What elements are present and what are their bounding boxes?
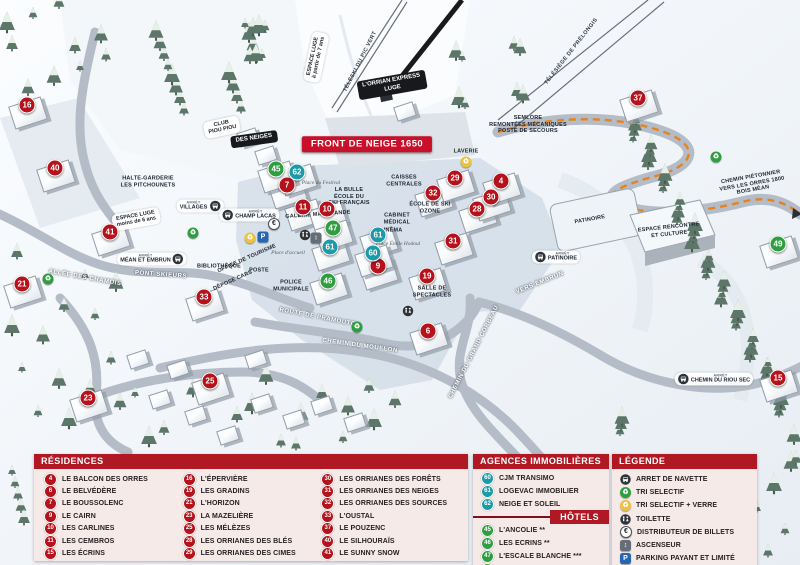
map-marker-28[interactable]: 28 bbox=[469, 201, 486, 218]
residence-item-29: 29LES ORRIANES DES CIMES bbox=[183, 547, 322, 559]
legend-item-label: L'OUSTAL bbox=[339, 513, 374, 520]
legend-number-badge: 6 bbox=[44, 485, 57, 498]
legend-number-badge: 62 bbox=[481, 498, 494, 511]
residence-item-33: 33L'OUSTAL bbox=[321, 510, 460, 522]
bus-icon bbox=[620, 474, 631, 485]
legend-item-label: LES MÉLÈZES bbox=[201, 525, 251, 532]
hotel-item-46: 46LES ECRINS ** bbox=[481, 537, 603, 550]
residence-item-7: 7LE BOUSSOLENC bbox=[44, 498, 183, 510]
legend-item-label: LES ORRIANES DES BLÉS bbox=[201, 538, 293, 545]
legende-item-toilet: TOILETTE bbox=[620, 513, 751, 526]
parking-icon: P bbox=[620, 553, 631, 564]
legende-item-label: TRI SELECTIF + VERRE bbox=[636, 502, 717, 509]
map-marker-21[interactable]: 21 bbox=[14, 276, 31, 293]
panel-residences: RÉSIDENCES 4LE BALCON DES ORRES6LE BELVÉ… bbox=[34, 454, 468, 561]
legende-item-waste: ♻TRI SELECTIF + VERRE bbox=[620, 499, 751, 512]
legend-number-badge: 46 bbox=[481, 537, 494, 550]
map-marker-33[interactable]: 33 bbox=[196, 289, 213, 306]
map-marker-10[interactable]: 10 bbox=[319, 201, 336, 218]
map-marker-30[interactable]: 30 bbox=[483, 189, 500, 206]
legend-item-label: LES ORRIANES DES NEIGES bbox=[339, 488, 439, 495]
residence-item-25: 25LES MÉLÈZES bbox=[183, 523, 322, 535]
residence-item-10: 10LES CARLINES bbox=[44, 523, 183, 535]
residence-item-41: 41LE SUNNY SNOW bbox=[321, 547, 460, 559]
map-marker-19[interactable]: 19 bbox=[419, 268, 436, 285]
map-marker-45[interactable]: 45 bbox=[268, 161, 285, 178]
map-marker-25[interactable]: 25 bbox=[202, 373, 219, 390]
map-marker-49[interactable]: 49 bbox=[770, 236, 787, 253]
residence-item-16: 16L'ÉPERVIÈRE bbox=[183, 473, 322, 485]
legende-item-label: ARRET DE NAVETTE bbox=[636, 476, 707, 483]
legend-number-badge: 40 bbox=[321, 535, 334, 548]
panel-legende: LÉGENDE ARRET DE NAVETTE♻TRI SELECTIF♻TR… bbox=[612, 454, 757, 565]
legend-item-label: CJM TRANSIMO bbox=[499, 475, 554, 482]
toilet-icon bbox=[620, 514, 631, 525]
residence-item-37: 37LE POUZENC bbox=[321, 523, 460, 535]
map-marker-41[interactable]: 41 bbox=[102, 224, 119, 241]
legend-item-label: LES ÉCRINS bbox=[62, 550, 105, 557]
legend-number-badge: 15 bbox=[44, 547, 57, 560]
residence-item-15: 15LES ÉCRINS bbox=[44, 547, 183, 559]
legende-list: ARRET DE NAVETTE♻TRI SELECTIF♻TRI SELECT… bbox=[612, 469, 757, 565]
legend-number-badge: 45 bbox=[481, 524, 494, 537]
waste-icon: ♻ bbox=[620, 500, 631, 511]
legend-number-badge: 37 bbox=[321, 522, 334, 535]
legend-item-label: LES ORRIANES DES CIMES bbox=[201, 550, 296, 557]
residence-item-11: 11LES CEMBROS bbox=[44, 535, 183, 547]
legend-number-badge: 19 bbox=[183, 485, 196, 498]
hotels-divider: HÔTELS bbox=[473, 516, 609, 518]
panel-agences: AGENCES IMMOBILIÈRES 60CJM TRANSIMO61LOG… bbox=[473, 454, 609, 565]
map-marker-37[interactable]: 37 bbox=[630, 90, 647, 107]
map-marker-60[interactable]: 60 bbox=[365, 245, 382, 262]
map-marker-62[interactable]: 62 bbox=[289, 164, 306, 181]
map-marker-4[interactable]: 4 bbox=[493, 173, 510, 190]
elevator-icon: ↕ bbox=[620, 540, 631, 551]
legend-number-badge: 23 bbox=[183, 510, 196, 523]
legend-item-label: LES GRADINS bbox=[201, 488, 250, 495]
legende-item-label: TOILETTE bbox=[636, 516, 671, 523]
legend-number-badge: 9 bbox=[44, 510, 57, 523]
panel-residences-title: RÉSIDENCES bbox=[34, 454, 468, 469]
residence-item-31: 31LES ORRIANES DES NEIGES bbox=[321, 485, 460, 497]
legend-item-label: LE POUZENC bbox=[339, 525, 385, 532]
legende-item-elevator: ↕ASCENSEUR bbox=[620, 539, 751, 552]
legend-number-badge: 28 bbox=[183, 535, 196, 548]
legend-number-badge: 30 bbox=[321, 473, 334, 486]
recycle-icon: ♻ bbox=[620, 487, 631, 498]
legende-item-euro: €DISTRIBUTEUR DE BILLETS bbox=[620, 526, 751, 539]
map-marker-40[interactable]: 40 bbox=[47, 160, 64, 177]
euro-icon: € bbox=[620, 526, 632, 538]
legende-item-recycle: ♻TRI SELECTIF bbox=[620, 486, 751, 499]
residence-item-6: 6LE BELVÉDÈRE bbox=[44, 485, 183, 497]
map-marker-31[interactable]: 31 bbox=[445, 233, 462, 250]
legend-item-label: LA MAZELIÈRE bbox=[201, 513, 254, 520]
legend-number-badge: 10 bbox=[44, 522, 57, 535]
residence-item-9: 9LE CAIRN bbox=[44, 510, 183, 522]
legende-item-label: ASCENSEUR bbox=[636, 542, 681, 549]
legend-item-label: L'ÉPERVIÈRE bbox=[201, 476, 248, 483]
legend-number-badge: 25 bbox=[183, 522, 196, 535]
legende-item-parking: PPARKING PAYANT ET LIMITÉ bbox=[620, 552, 751, 565]
legend-item-label: LES CEMBROS bbox=[62, 538, 114, 545]
residences-list: 4LE BALCON DES ORRES6LE BELVÉDÈRE7LE BOU… bbox=[34, 469, 468, 561]
map-marker-23[interactable]: 23 bbox=[80, 390, 97, 407]
map-marker-47[interactable]: 47 bbox=[325, 220, 342, 237]
panel-agences-title: AGENCES IMMOBILIÈRES bbox=[473, 454, 609, 469]
map-marker-15[interactable]: 15 bbox=[770, 370, 787, 387]
residence-item-23: 23LA MAZELIÈRE bbox=[183, 510, 322, 522]
residence-item-19: 19LES GRADINS bbox=[183, 485, 322, 497]
legend-item-label: L'HORIZON bbox=[201, 500, 240, 507]
ski-resort-map: FRONT DE NEIGE 1650L'ORRIAN EXPRESS LUGE… bbox=[0, 0, 800, 565]
legend-number-badge: 21 bbox=[183, 497, 196, 510]
residence-item-28: 28LES ORRIANES DES BLÉS bbox=[183, 535, 322, 547]
residence-item-40: 40LE SILHOURAÏS bbox=[321, 535, 460, 547]
map-marker-61[interactable]: 61 bbox=[370, 227, 387, 244]
legend-item-label: LE SUNNY SNOW bbox=[339, 550, 399, 557]
legend-number-badge: 60 bbox=[481, 472, 494, 485]
panel-legende-title: LÉGENDE bbox=[612, 454, 757, 469]
legend-item-label: LE BALCON DES ORRES bbox=[62, 476, 148, 483]
legend-item-label: L'ESCALE BLANCHE *** bbox=[499, 553, 582, 560]
map-marker-46[interactable]: 46 bbox=[320, 273, 337, 290]
legend-item-label: LES ECRINS ** bbox=[499, 540, 550, 547]
legend-number-badge: 16 bbox=[183, 473, 196, 486]
legend-number-badge: 33 bbox=[321, 510, 334, 523]
residence-item-4: 4LE BALCON DES ORRES bbox=[44, 473, 183, 485]
legende-item-label: DISTRIBUTEUR DE BILLETS bbox=[637, 529, 734, 536]
legende-item-bus: ARRET DE NAVETTE bbox=[620, 473, 751, 486]
map-marker-32[interactable]: 32 bbox=[425, 185, 442, 202]
map-marker-6[interactable]: 6 bbox=[420, 323, 437, 340]
legend-item-label: LES ORRIANES DES SOURCES bbox=[339, 500, 447, 507]
legend-item-label: LE BOUSSOLENC bbox=[62, 500, 124, 507]
legend-item-label: LES CARLINES bbox=[62, 525, 115, 532]
agence-item-60: 60CJM TRANSIMO bbox=[481, 472, 603, 485]
legend-item-label: LE SILHOURAÏS bbox=[339, 538, 394, 545]
hotel-item-47: 47L'ESCALE BLANCHE *** bbox=[481, 550, 603, 563]
legend-item-label: LE BELVÉDÈRE bbox=[62, 488, 116, 495]
panel-hotels-title: HÔTELS bbox=[550, 510, 609, 524]
agence-item-61: 61LOGEVAC IMMOBILIER bbox=[481, 485, 603, 498]
map-marker-29[interactable]: 29 bbox=[447, 170, 464, 187]
legend-number-badge: 29 bbox=[183, 547, 196, 560]
legend-number-badge: 7 bbox=[44, 497, 57, 510]
legend-number-badge: 11 bbox=[44, 535, 57, 548]
legend-number-badge: 61 bbox=[481, 485, 494, 498]
legend-item-label: LOGEVAC IMMOBILIER bbox=[499, 488, 579, 495]
residence-item-32: 32LES ORRIANES DES SOURCES bbox=[321, 498, 460, 510]
legend-number-badge: 41 bbox=[321, 547, 334, 560]
legende-item-label: TRI SELECTIF bbox=[636, 489, 684, 496]
legend-number-badge: 32 bbox=[321, 497, 334, 510]
legend-item-label: L'ANCOLIE ** bbox=[499, 527, 545, 534]
agences-list: 60CJM TRANSIMO61LOGEVAC IMMOBILIER62NEIG… bbox=[473, 469, 609, 513]
legend-number-badge: 31 bbox=[321, 485, 334, 498]
map-marker-16[interactable]: 16 bbox=[19, 97, 36, 114]
residence-item-21: 21L'HORIZON bbox=[183, 498, 322, 510]
hotel-item-45: 45L'ANCOLIE ** bbox=[481, 524, 603, 537]
legend-number-badge: 4 bbox=[44, 473, 57, 486]
map-marker-11[interactable]: 11 bbox=[295, 199, 312, 216]
legend-item-label: LES ORRIANES DES FORÊTS bbox=[339, 476, 440, 483]
legend-item-label: LE CAIRN bbox=[62, 513, 96, 520]
legend-number-badge: 47 bbox=[481, 550, 494, 563]
residence-item-30: 30LES ORRIANES DES FORÊTS bbox=[321, 473, 460, 485]
hotels-list: 45L'ANCOLIE **46LES ECRINS **47L'ESCALE … bbox=[473, 521, 609, 565]
legend-item-label: NEIGE ET SOLEIL bbox=[499, 501, 560, 508]
legende-item-label: PARKING PAYANT ET LIMITÉ bbox=[636, 555, 735, 562]
map-marker-61[interactable]: 61 bbox=[322, 239, 339, 256]
